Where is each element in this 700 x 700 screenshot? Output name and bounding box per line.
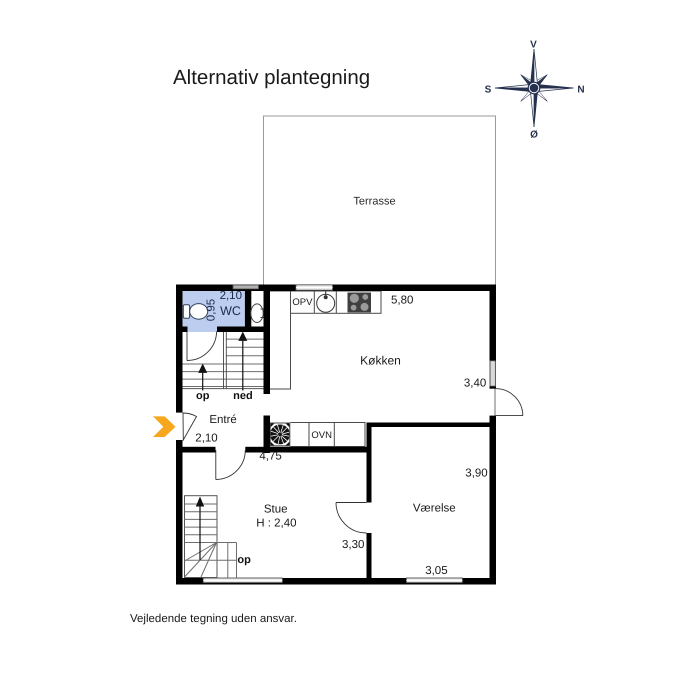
svg-text:Værelse: Værelse xyxy=(413,503,456,515)
svg-text:Entré: Entré xyxy=(209,414,237,426)
svg-text:S: S xyxy=(485,85,492,96)
svg-text:Ø: Ø xyxy=(530,130,538,141)
svg-text:2,10: 2,10 xyxy=(220,290,242,302)
svg-text:Stue: Stue xyxy=(264,504,288,516)
svg-text:Terrasse: Terrasse xyxy=(353,195,395,207)
svg-text:Køkken: Køkken xyxy=(360,353,401,367)
svg-text:3,30: 3,30 xyxy=(342,539,364,551)
svg-text:WC: WC xyxy=(220,304,241,318)
svg-text:N: N xyxy=(577,85,584,96)
svg-text:op: op xyxy=(237,554,251,566)
svg-text:Vejledende tegning uden ansvar: Vejledende tegning uden ansvar. xyxy=(130,613,297,625)
svg-text:5,80: 5,80 xyxy=(391,294,413,306)
svg-text:V: V xyxy=(530,40,537,51)
svg-text:3,05: 3,05 xyxy=(425,565,447,577)
svg-text:2,10: 2,10 xyxy=(195,432,217,444)
svg-text:OVN: OVN xyxy=(311,430,332,441)
svg-text:ned: ned xyxy=(233,390,253,402)
svg-text:0,95: 0,95 xyxy=(206,299,218,321)
svg-text:op: op xyxy=(196,390,210,402)
svg-text:4,75: 4,75 xyxy=(259,451,281,463)
svg-text:OPV: OPV xyxy=(292,297,313,308)
svg-text:Alternativ plantegning: Alternativ plantegning xyxy=(173,66,370,89)
svg-text:H : 2,40: H : 2,40 xyxy=(256,518,296,530)
svg-text:3,90: 3,90 xyxy=(465,468,487,480)
svg-text:3,40: 3,40 xyxy=(464,377,486,389)
